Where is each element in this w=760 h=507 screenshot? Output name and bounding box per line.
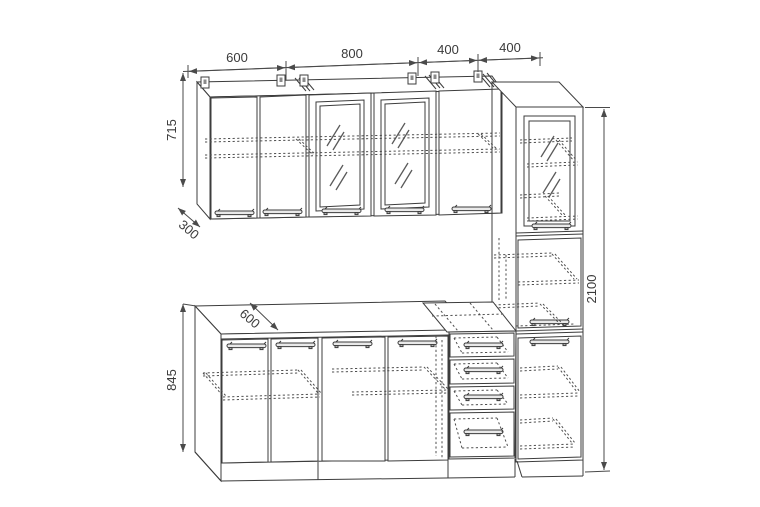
dimension-total-height: 2100 — [584, 108, 610, 473]
base-door-4 — [388, 336, 448, 461]
bracket-icon — [277, 75, 285, 86]
tall-front-face — [516, 107, 583, 462]
dimension-wall-depth: 300 — [176, 208, 202, 242]
tall-plinth — [517, 460, 583, 477]
base-door-2 — [271, 338, 318, 462]
dim-label-845: 845 — [164, 369, 179, 391]
dimension-base-height: 845 — [164, 304, 196, 452]
dim-label-2100: 2100 — [584, 275, 599, 304]
kitchen-technical-drawing: 600 800 400 400 715 300 845 600 — [0, 0, 760, 507]
dim-label-715: 715 — [164, 119, 179, 141]
dim-label-width-400b: 400 — [499, 40, 521, 55]
dim-label-width-800: 800 — [341, 46, 363, 61]
tall-top-face — [492, 82, 583, 107]
base-door-3 — [322, 337, 385, 461]
base-door-1 — [222, 339, 268, 463]
bracket-icon — [201, 77, 209, 88]
wall-door-1 — [211, 97, 257, 219]
drawing-canvas: 600 800 400 400 715 300 845 600 — [0, 0, 760, 507]
dim-label-300: 300 — [176, 217, 202, 242]
wall-left-side-panel — [197, 82, 210, 219]
dimension-top-widths: 600 800 400 400 — [183, 40, 543, 80]
bracket-icon — [408, 73, 416, 84]
bracket-icon — [431, 72, 439, 83]
base-left-side-panel — [195, 306, 221, 481]
tall-side-hidden-edges — [499, 238, 506, 300]
bracket-icon — [474, 71, 482, 82]
dim-label-width-400a: 400 — [437, 42, 459, 57]
wall-cabinet-row — [197, 71, 502, 219]
dim-label-width-600: 600 — [226, 50, 248, 65]
bracket-icon — [300, 75, 308, 86]
dimension-wall-height: 715 — [164, 73, 183, 187]
